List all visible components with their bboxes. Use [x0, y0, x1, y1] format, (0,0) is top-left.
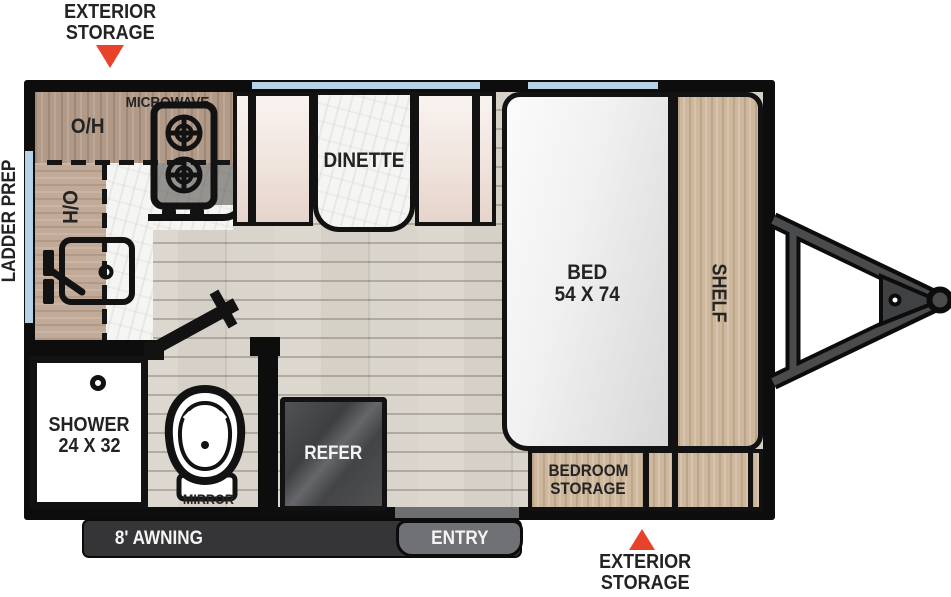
bed-label: BED 54 X 74: [507, 262, 668, 306]
entry-label: ENTRY: [431, 529, 488, 549]
storage-marker-triangle-icon: [96, 45, 124, 68]
hitch-a-frame-icon: [763, 198, 951, 404]
dinette-table: DINETTE: [313, 92, 415, 232]
bed: BED 54 X 74: [502, 92, 673, 451]
awning-label: 8' AWNING: [115, 529, 203, 549]
entry-badge: ENTRY: [396, 520, 523, 557]
window-strip-bed: [528, 82, 658, 89]
shower-label: SHOWER 24 X 32: [37, 415, 141, 457]
overhead-cabinet-side-label: O/H: [58, 188, 80, 225]
dinette-bench-left: [252, 92, 313, 226]
ladder-prep-label: LADDER PREP: [0, 153, 20, 289]
bedroom-storage: BEDROOM STORAGE: [528, 449, 763, 511]
bedroom-storage-label: BEDROOM STORAGE: [532, 453, 644, 507]
shelf-panel: SHELF: [673, 92, 763, 451]
rear-exterior-storage-callout: EXTERIOR STORAGE: [570, 552, 720, 594]
front-exterior-storage-callout: EXTERIOR STORAGE: [38, 2, 183, 44]
dinette-armrest-right: [476, 92, 496, 226]
shower-drain-icon: [90, 375, 106, 391]
bathroom-wall-stub: [258, 337, 278, 509]
shelf-label: SHELF: [708, 260, 729, 326]
dinette-label: DINETTE: [324, 150, 405, 172]
refrigerator: REFER: [280, 397, 387, 511]
mirror-label: MIRROR: [162, 492, 254, 507]
callout-text: EXTERIOR: [64, 2, 156, 23]
shower: SHOWER 24 X 32: [30, 356, 148, 509]
window-strip-dinette: [252, 82, 480, 89]
refer-label: REFER: [305, 444, 363, 464]
stove-icon: [150, 101, 218, 229]
storage-divider: [672, 453, 678, 507]
overhead-cabinet-label: O/H: [53, 116, 123, 138]
window-strip-left-wall: [25, 151, 33, 323]
bathroom-door-icon: [136, 284, 252, 364]
toilet-icon: [153, 385, 257, 503]
floorplan-page: EXTERIOR STORAGE LADDER PREP MICROWAVE O…: [0, 0, 951, 597]
sink-icon: [40, 236, 136, 306]
dinette-bench-right: [415, 92, 476, 226]
entry-door: [395, 507, 519, 518]
callout-text: STORAGE: [66, 23, 155, 44]
dinette-armrest-left: [233, 92, 252, 226]
storage-marker-triangle-icon: [629, 529, 655, 550]
storage-divider: [643, 453, 649, 507]
storage-divider: [748, 453, 753, 507]
